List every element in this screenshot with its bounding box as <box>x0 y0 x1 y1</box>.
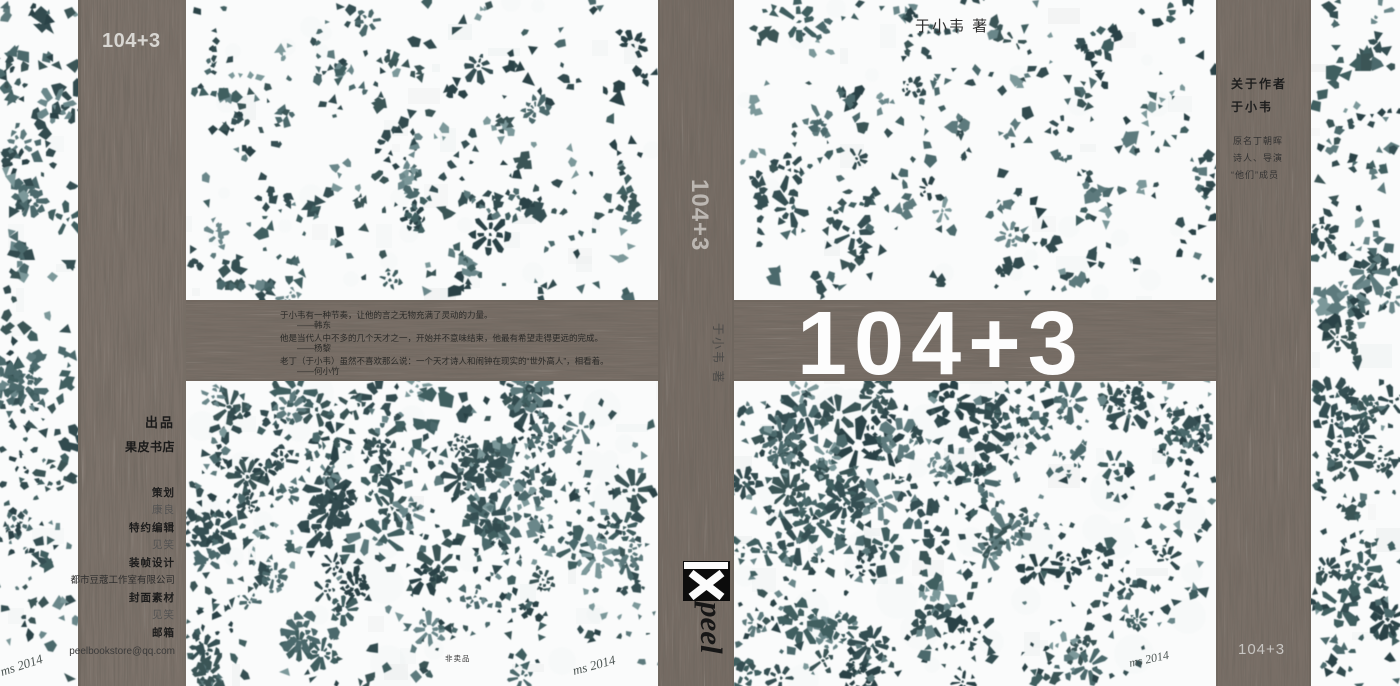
svg-text:“他们”成员: “他们”成员 <box>1231 169 1279 180</box>
svg-text:邮箱: 邮箱 <box>152 626 175 639</box>
svg-text:策划: 策划 <box>151 486 175 499</box>
svg-text:非卖品: 非卖品 <box>445 653 471 663</box>
svg-text:104+3: 104+3 <box>686 179 713 251</box>
svg-text:原名丁朝晖: 原名丁朝晖 <box>1233 135 1283 146</box>
svg-text:——何小竹: ——何小竹 <box>297 366 340 376</box>
svg-text:peel: peel <box>694 599 729 654</box>
svg-text:装帧设计: 装帧设计 <box>128 556 175 569</box>
svg-text:于小韦有一种节奏，让他的言之无物充满了灵动的力量。: 于小韦有一种节奏，让他的言之无物充满了灵动的力量。 <box>280 310 493 320</box>
svg-text:特约编辑: 特约编辑 <box>129 521 175 534</box>
svg-text:peelbookstore@qq.com: peelbookstore@qq.com <box>69 646 175 657</box>
svg-text:都市豆蔻工作室有限公司: 都市豆蔻工作室有限公司 <box>70 574 175 586</box>
svg-text:出品: 出品 <box>145 415 175 430</box>
svg-text:104+3: 104+3 <box>797 294 1085 394</box>
svg-text:诗人、导演: 诗人、导演 <box>1233 152 1283 163</box>
svg-text:康良: 康良 <box>152 503 175 516</box>
svg-text:见笑: 见笑 <box>152 608 175 621</box>
svg-text:104+3: 104+3 <box>102 30 161 52</box>
svg-text:关于作者: 关于作者 <box>1231 76 1287 91</box>
svg-text:见笑: 见笑 <box>152 538 175 551</box>
svg-text:封面素材: 封面素材 <box>129 591 175 604</box>
svg-text:104+3: 104+3 <box>1238 641 1285 658</box>
svg-text:他是当代人中不多的几个天才之一，开始并不意味结束，他最有希望: 他是当代人中不多的几个天才之一，开始并不意味结束，他最有希望走得更远的完成。 <box>280 333 603 343</box>
svg-text:于小韦: 于小韦 <box>1231 99 1273 114</box>
svg-text:于小韦 著: 于小韦 著 <box>711 323 725 384</box>
svg-text:于小韦 著: 于小韦 著 <box>915 18 989 35</box>
svg-text:果皮书店: 果皮书店 <box>124 439 175 454</box>
svg-text:——杨黎: ——杨黎 <box>297 343 332 353</box>
svg-text:——韩东: ——韩东 <box>297 320 331 330</box>
svg-text:老丁（于小韦）虽然不喜欢那么说：一个天才诗人和闹钟在现实的“: 老丁（于小韦）虽然不喜欢那么说：一个天才诗人和闹钟在现实的“世外高人”，相看着。 <box>280 356 609 366</box>
